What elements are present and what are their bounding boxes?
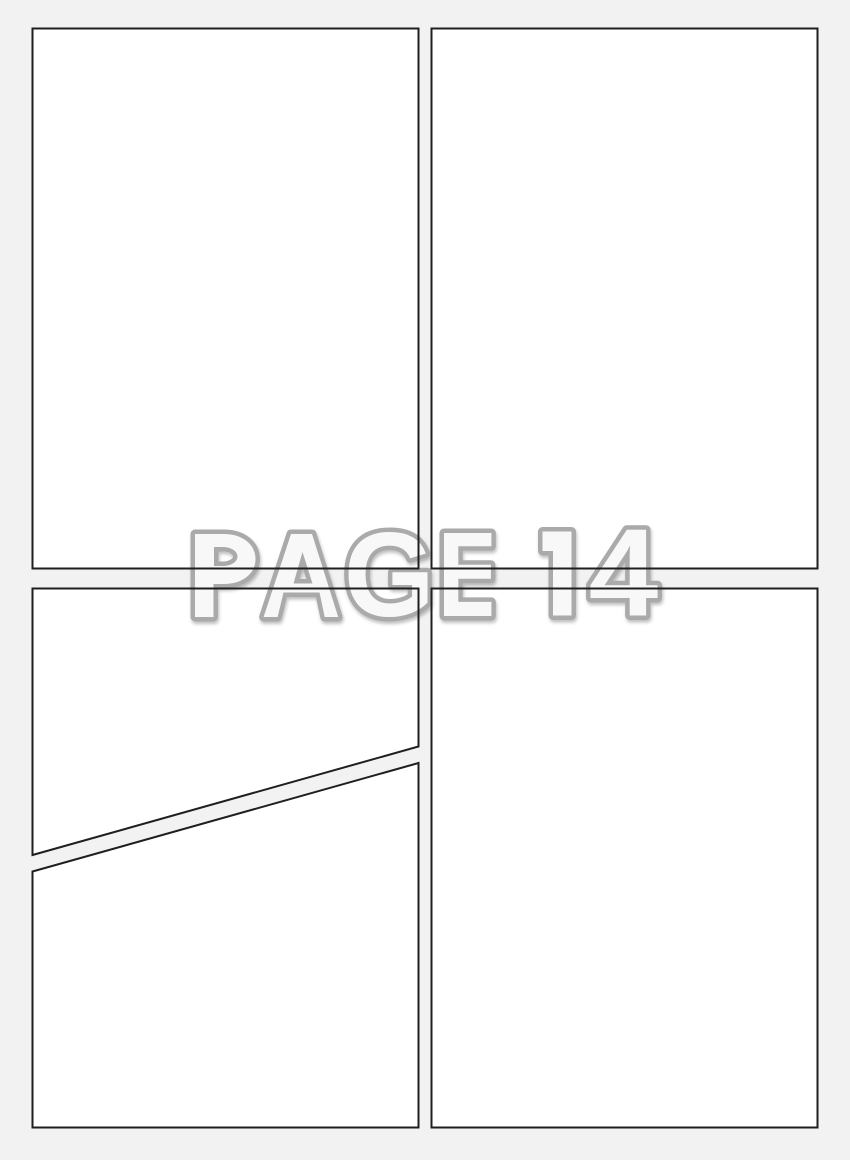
svg-text:G: G (344, 508, 435, 642)
svg-text:4: 4 (589, 505, 659, 643)
